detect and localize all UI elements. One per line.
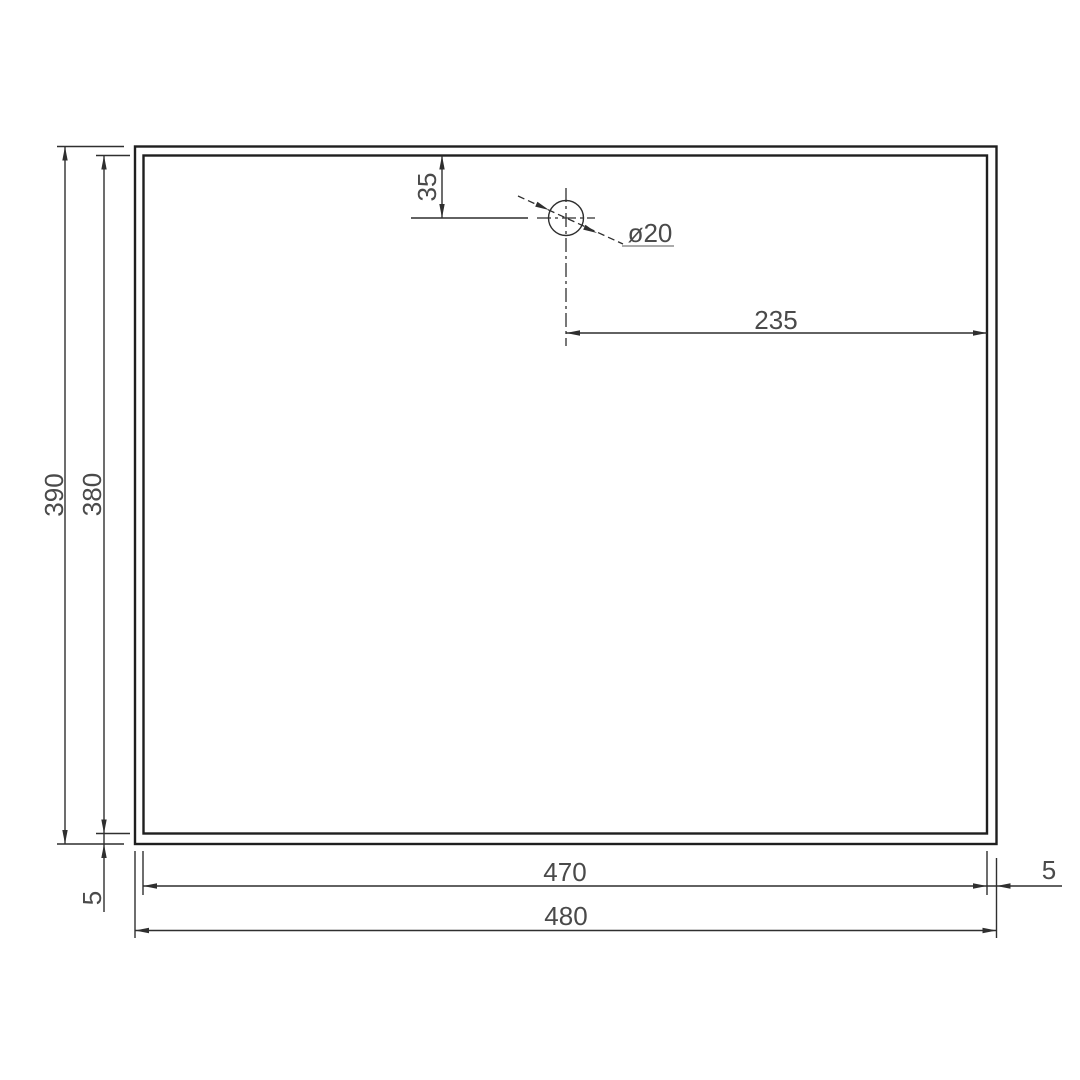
arrowhead-right bbox=[973, 883, 987, 888]
dim-label-outer-width: 480 bbox=[544, 901, 587, 931]
arrowhead-up bbox=[101, 844, 106, 858]
arrowhead-down bbox=[101, 820, 106, 834]
arrowhead-left bbox=[135, 928, 149, 933]
drawing-svg: 35 ø20 235 390 380 5 bbox=[0, 0, 1080, 1080]
dim-label-hole-diameter: ø20 bbox=[628, 218, 673, 248]
arrowhead-left bbox=[143, 883, 157, 888]
dim-inner-width: 470 bbox=[143, 851, 1062, 895]
dim-label-rim-gap-left: 5 bbox=[77, 891, 107, 905]
dim-rim-gap-left: 5 bbox=[77, 844, 107, 905]
diameter-leader-line bbox=[518, 196, 623, 244]
dim-label-rim-gap-right: 5 bbox=[1042, 855, 1056, 885]
technical-drawing: 35 ø20 235 390 380 5 bbox=[0, 0, 1080, 1080]
dim-inner-height: 380 bbox=[77, 156, 130, 913]
dim-label-inner-height: 380 bbox=[77, 473, 107, 516]
dim-label-hole-offset-top: 35 bbox=[412, 173, 442, 202]
dim-hole-offset-right: 235 bbox=[566, 305, 987, 336]
inner-rectangle bbox=[144, 156, 988, 834]
arrowhead-right bbox=[973, 330, 987, 335]
dim-hole-offset-top: 35 bbox=[411, 156, 528, 219]
dim-label-inner-width: 470 bbox=[543, 857, 586, 887]
dim-label-outer-height: 390 bbox=[39, 473, 69, 516]
arrowhead-up bbox=[439, 156, 444, 170]
arrowhead-left bbox=[566, 330, 580, 335]
arrowhead-left bbox=[997, 883, 1011, 888]
arrowhead-diagonal-lower bbox=[583, 225, 597, 233]
arrowhead-diagonal-upper bbox=[535, 202, 549, 210]
arrowhead-right bbox=[983, 928, 997, 933]
arrowhead-up bbox=[101, 156, 106, 170]
arrowhead-down bbox=[62, 830, 67, 844]
hole bbox=[537, 188, 595, 346]
dim-label-hole-offset-right: 235 bbox=[754, 305, 797, 335]
dim-hole-diameter: ø20 bbox=[518, 196, 674, 248]
arrowhead-down bbox=[439, 204, 444, 218]
dim-rim-gap-right: 5 bbox=[997, 855, 1057, 889]
arrowhead-up bbox=[62, 147, 67, 161]
